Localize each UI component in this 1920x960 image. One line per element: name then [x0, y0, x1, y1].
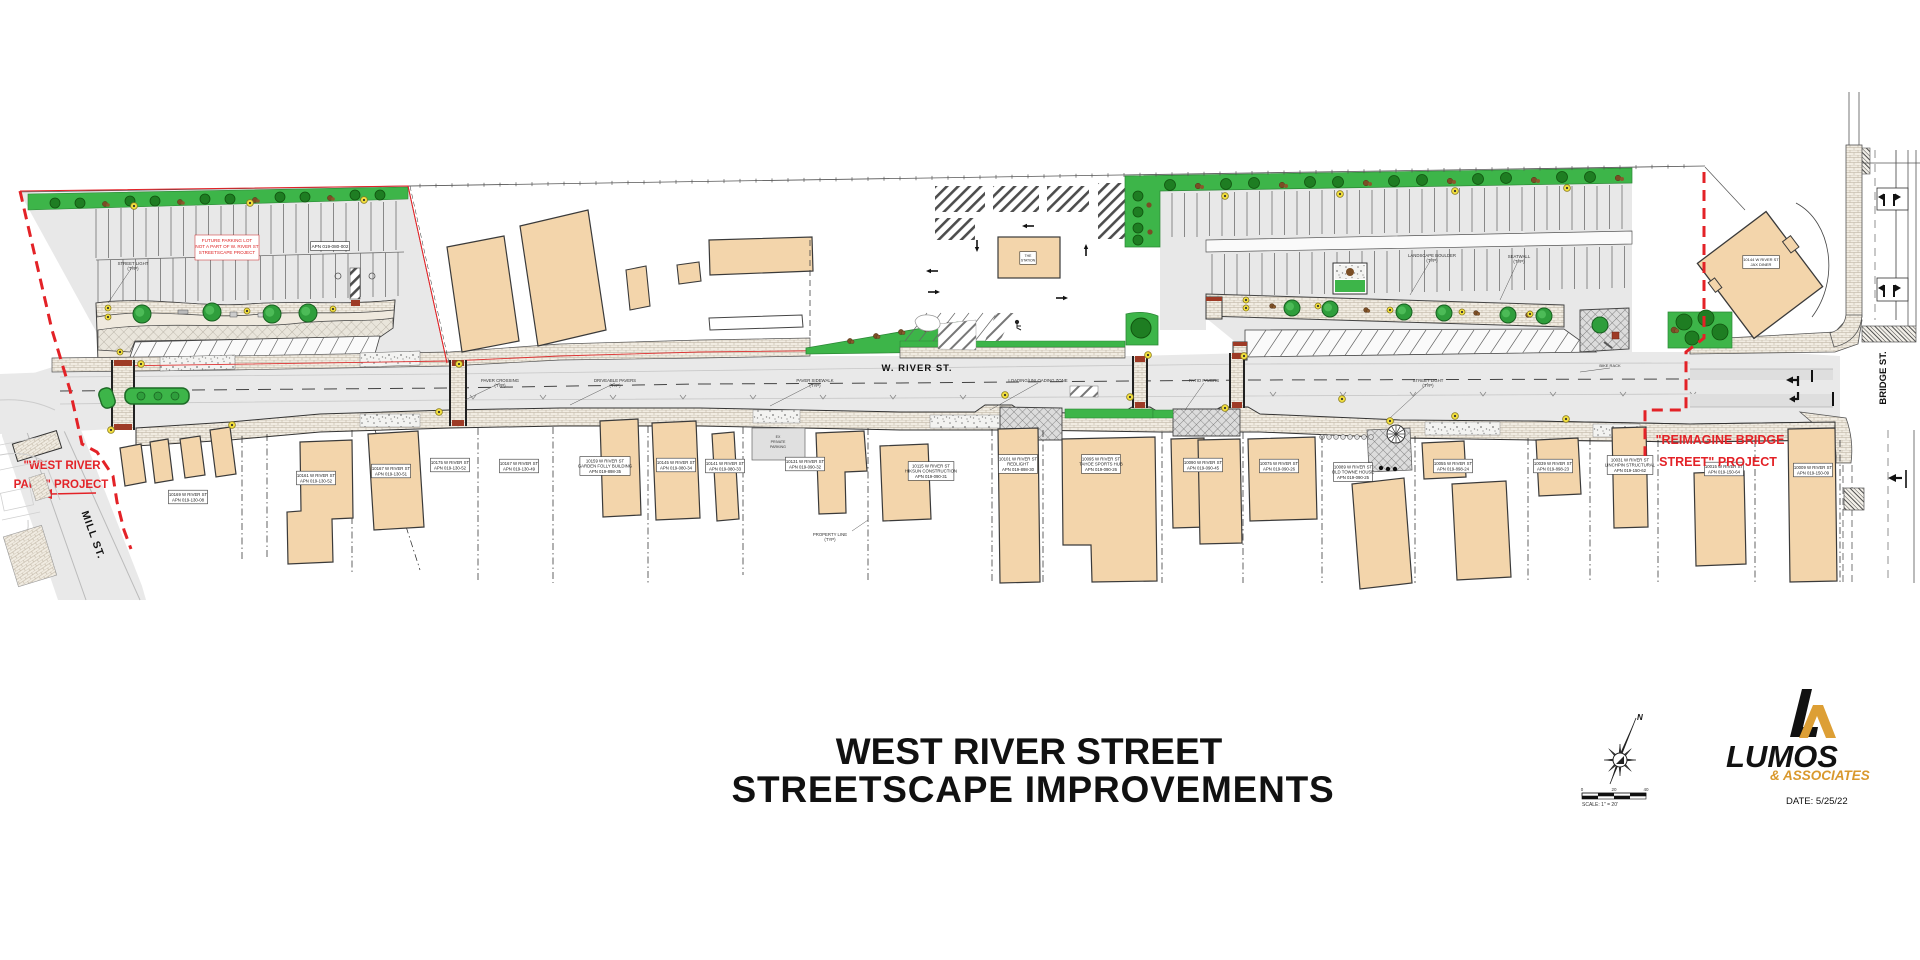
svg-text:APN 019-150-09: APN 019-150-09	[1797, 470, 1830, 475]
svg-text:(TYP): (TYP)	[809, 383, 821, 388]
svg-text:"REIMAGINE BRIDGE: "REIMAGINE BRIDGE	[1656, 433, 1785, 447]
svg-text:APN 019-130-52: APN 019-130-52	[434, 465, 467, 470]
svg-text:& ASSOCIATES: & ASSOCIATES	[1770, 768, 1870, 783]
svg-text:APN 019-090-25: APN 019-090-25	[1337, 475, 1370, 480]
svg-text:APN 019-130-08: APN 019-130-08	[172, 497, 205, 502]
svg-text:(TYP): (TYP)	[609, 383, 621, 388]
svg-text:APN 019-090-32: APN 019-090-32	[789, 464, 822, 469]
svg-text:APN 019-080-33: APN 019-080-33	[709, 466, 742, 471]
svg-text:STATION: STATION	[1021, 259, 1036, 263]
svg-text:STREETSCAPE IMPROVEMENTS: STREETSCAPE IMPROVEMENTS	[731, 769, 1334, 810]
svg-text:N: N	[1637, 713, 1643, 722]
svg-text:PARKING: PARKING	[770, 445, 786, 449]
svg-text:BRIDGE ST.: BRIDGE ST.	[1878, 351, 1889, 404]
svg-text:LOADING/UNLOADING ZONE: LOADING/UNLOADING ZONE	[1008, 378, 1067, 383]
svg-text:APN 019-150-64: APN 019-150-64	[1708, 469, 1741, 474]
svg-text:PATIO PAVERS: PATIO PAVERS	[1189, 378, 1219, 383]
svg-text:APN 019-898-35: APN 019-898-35	[589, 469, 622, 474]
svg-text:APN 019-090-26: APN 019-090-26	[1085, 467, 1118, 472]
svg-text:(TYP): (TYP)	[824, 537, 836, 542]
svg-text:JAX DINER: JAX DINER	[1751, 262, 1772, 267]
svg-text:APN 019-080-34: APN 019-080-34	[660, 465, 693, 470]
svg-text:EX: EX	[776, 435, 781, 439]
svg-text:APN 019-150-62: APN 019-150-62	[1614, 468, 1647, 473]
svg-text:SCALE: 1" = 20': SCALE: 1" = 20'	[1582, 802, 1618, 808]
svg-text:APN 019-090-26: APN 019-090-26	[1263, 466, 1296, 471]
svg-text:STREETSCAPE PROJECT: STREETSCAPE PROJECT	[199, 250, 256, 255]
svg-text:PARK" PROJECT: PARK" PROJECT	[14, 479, 109, 491]
svg-text:W. RIVER ST.: W. RIVER ST.	[881, 363, 952, 374]
svg-text:40: 40	[1643, 787, 1649, 792]
svg-text:(TYP): (TYP)	[1426, 258, 1438, 263]
svg-text:APN 019-130-52: APN 019-130-52	[300, 478, 333, 483]
svg-text:APN 019-080-002: APN 019-080-002	[312, 244, 349, 249]
svg-text:NOT A PART OF W. RIVER ST: NOT A PART OF W. RIVER ST	[195, 244, 258, 249]
svg-text:PRIVATE: PRIVATE	[771, 440, 786, 444]
svg-text:STREET" PROJECT: STREET" PROJECT	[1659, 455, 1777, 469]
svg-text:BIKE RACK: BIKE RACK	[1599, 363, 1621, 368]
svg-text:"WEST RIVER: "WEST RIVER	[23, 460, 101, 472]
svg-text:APN 019-898-23: APN 019-898-23	[1537, 466, 1570, 471]
svg-text:APN 019-090-45: APN 019-090-45	[1187, 465, 1220, 470]
svg-text:APN 019-898-24: APN 019-898-24	[1437, 466, 1470, 471]
svg-text:(TYP): (TYP)	[1513, 259, 1525, 264]
svg-text:20: 20	[1611, 787, 1617, 792]
svg-text:APN 019-130-51: APN 019-130-51	[375, 471, 408, 476]
svg-text:(TYP): (TYP)	[494, 383, 506, 388]
svg-text:(TYP): (TYP)	[127, 266, 139, 271]
svg-text:APN 019-130-49: APN 019-130-49	[503, 466, 536, 471]
svg-text:WEST RIVER STREET: WEST RIVER STREET	[836, 731, 1223, 772]
svg-text:FUTURE PARKING LOT: FUTURE PARKING LOT	[202, 238, 253, 243]
svg-text:(TYP): (TYP)	[1422, 383, 1434, 388]
svg-text:APN 019-090-31: APN 019-090-31	[915, 474, 948, 479]
svg-text:APN 019-898-30: APN 019-898-30	[1002, 467, 1035, 472]
svg-text:DATE: 5/25/22: DATE: 5/25/22	[1786, 796, 1848, 807]
